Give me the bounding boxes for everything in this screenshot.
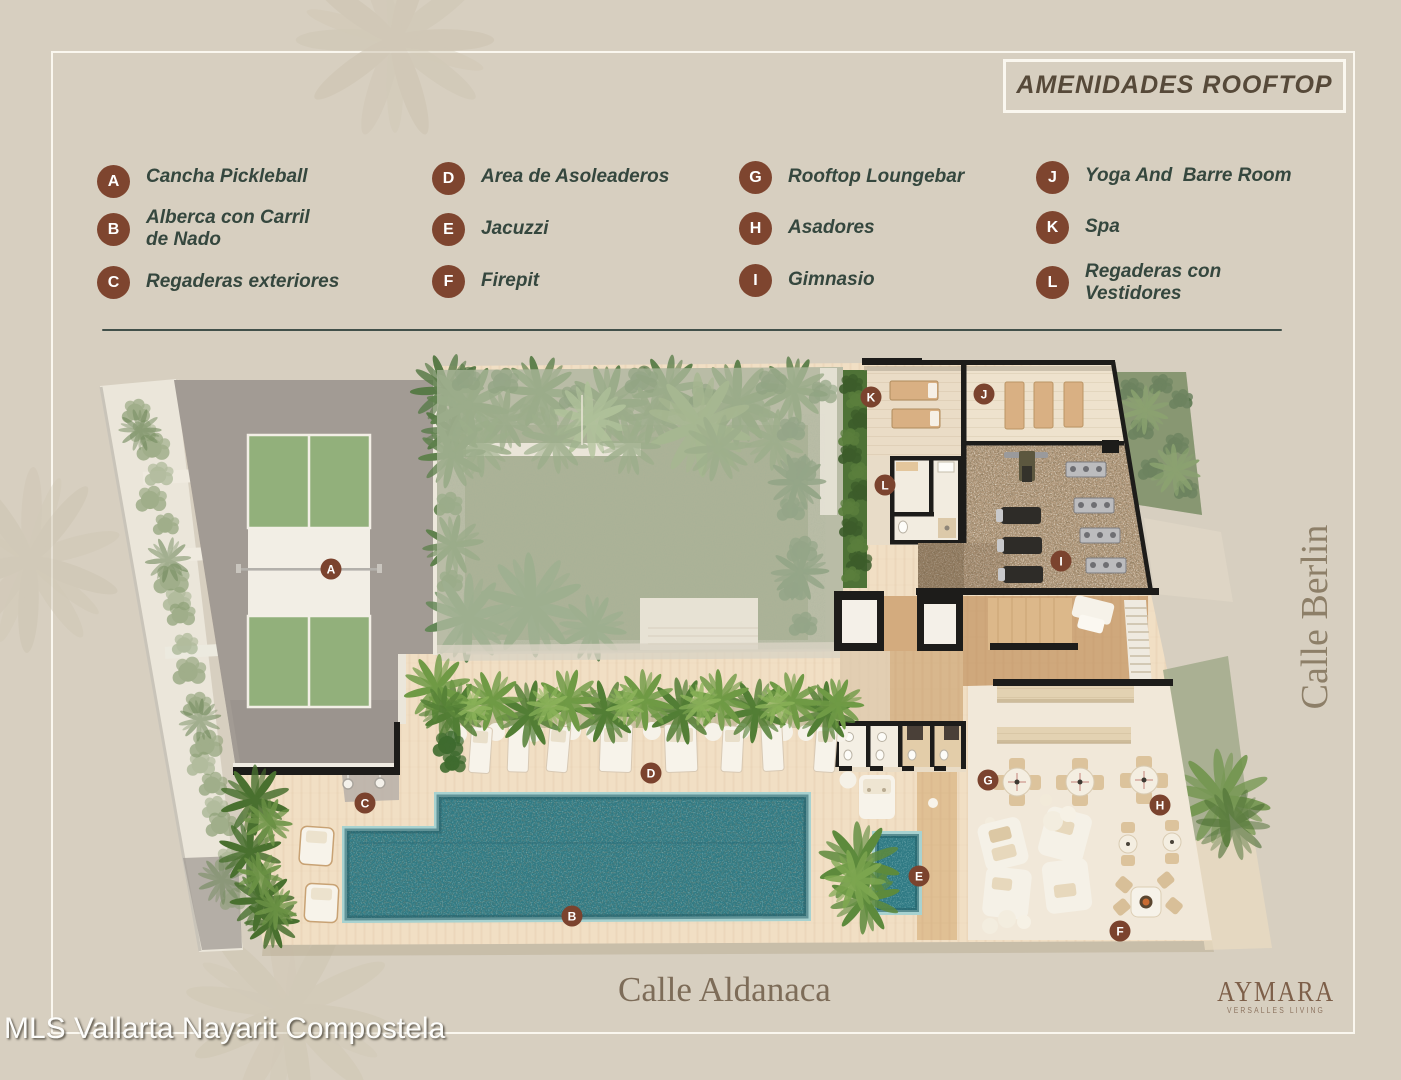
svg-text:H: H xyxy=(1156,799,1165,813)
svg-text:C: C xyxy=(361,797,370,811)
svg-text:I: I xyxy=(1059,555,1062,569)
svg-text:A: A xyxy=(327,563,336,577)
svg-text:K: K xyxy=(867,391,876,405)
svg-text:E: E xyxy=(915,870,923,884)
svg-text:F: F xyxy=(1116,925,1123,939)
svg-text:G: G xyxy=(983,774,992,788)
svg-text:J: J xyxy=(981,388,988,402)
svg-text:B: B xyxy=(568,910,577,924)
svg-text:L: L xyxy=(881,479,888,493)
svg-text:D: D xyxy=(647,767,656,781)
